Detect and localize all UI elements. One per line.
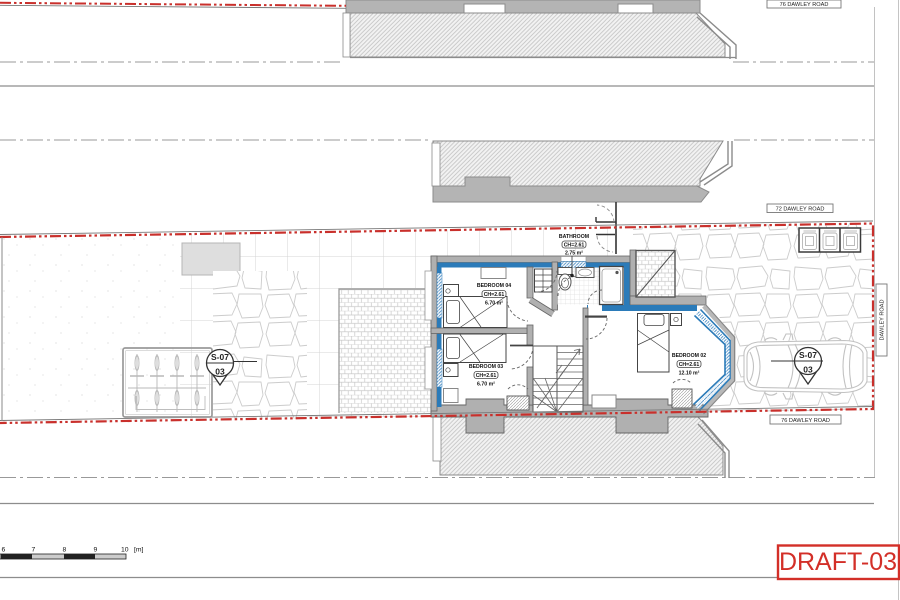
svg-text:2.75 m²: 2.75 m² xyxy=(565,251,583,257)
svg-text:BEDROOM 04: BEDROOM 04 xyxy=(477,283,511,289)
svg-text:S-07: S-07 xyxy=(211,352,229,362)
svg-text:72 DAWLEY ROAD: 72 DAWLEY ROAD xyxy=(776,207,825,213)
svg-text:CH=2.61: CH=2.61 xyxy=(476,373,497,379)
svg-text:76 DAWLEY ROAD: 76 DAWLEY ROAD xyxy=(781,418,830,424)
svg-text:7: 7 xyxy=(32,547,36,554)
svg-text:12.10 m²: 12.10 m² xyxy=(679,371,700,377)
svg-text:DAWLEY ROAD: DAWLEY ROAD xyxy=(880,299,886,340)
svg-text:6: 6 xyxy=(2,547,6,554)
svg-text:6.70 m²: 6.70 m² xyxy=(477,382,495,388)
svg-text:76 DAWLEY ROAD: 76 DAWLEY ROAD xyxy=(780,2,829,8)
svg-text:CH=2.61: CH=2.61 xyxy=(564,243,585,249)
svg-text:03: 03 xyxy=(215,367,225,377)
svg-text:BATHROOM: BATHROOM xyxy=(559,234,589,240)
svg-text:BEDROOM 03: BEDROOM 03 xyxy=(469,364,503,370)
svg-text:CH=2.61: CH=2.61 xyxy=(484,292,505,298)
svg-text:6.70 m²: 6.70 m² xyxy=(485,301,503,307)
svg-text:[m]: [m] xyxy=(134,547,144,554)
svg-text:8: 8 xyxy=(63,547,67,554)
svg-text:9: 9 xyxy=(94,547,98,554)
svg-text:DRAFT-03: DRAFT-03 xyxy=(779,548,897,576)
svg-text:BEDROOM 02: BEDROOM 02 xyxy=(672,353,706,359)
svg-text:CH=2.61: CH=2.61 xyxy=(679,362,700,368)
svg-text:03: 03 xyxy=(803,365,813,375)
svg-text:10: 10 xyxy=(121,547,129,554)
svg-text:S-07: S-07 xyxy=(799,350,817,360)
